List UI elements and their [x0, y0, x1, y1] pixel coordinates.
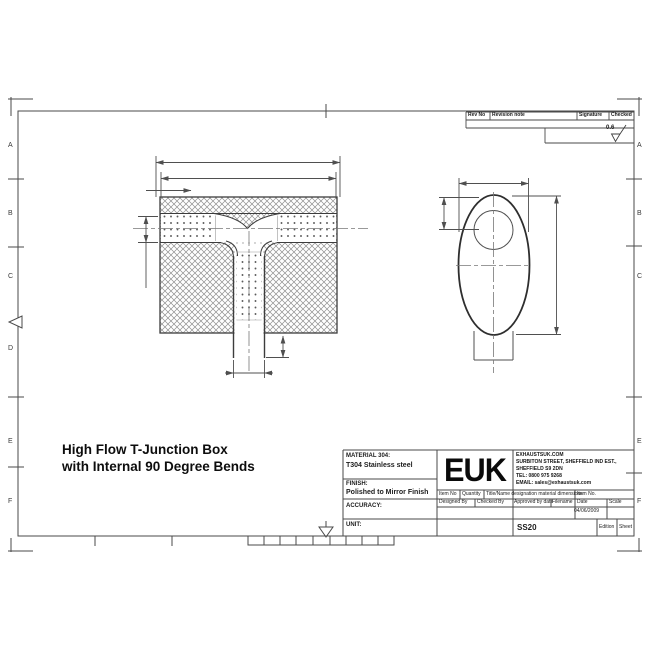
rev-no-header: Rev No	[468, 113, 485, 119]
zone-letter: F	[8, 498, 12, 506]
company-email: EMAIL: sales@exhaustsuk.com	[516, 480, 616, 487]
company-address: EXHAUSTSUK.COM SURBITON STREET, SHEFFIEL…	[516, 452, 616, 487]
unit-label: UNIT:	[346, 522, 361, 529]
front-section-view	[133, 156, 368, 378]
company-city: SHEFFIELD S9 2DN	[516, 466, 616, 473]
trim-mark	[8, 97, 33, 116]
drawing-title-line2: with Internal 90 Degree Bends	[62, 458, 255, 475]
finish-value: Polished to Mirror Finish	[346, 489, 428, 497]
zone-letter: F	[637, 498, 641, 506]
zone-letter: A	[637, 142, 642, 150]
finish-label: FINISH:	[346, 481, 368, 488]
sheet-label: Sheet	[619, 525, 632, 531]
trim-mark	[8, 538, 33, 552]
graduation-strip	[248, 536, 394, 545]
dimension-lines	[439, 178, 561, 335]
checked-by-header: Checked By	[477, 500, 504, 506]
edition-label: Edition	[599, 525, 614, 531]
zone-letter: C	[637, 273, 642, 281]
centering-mark-icon	[319, 521, 333, 537]
roughness-value: 0.6	[606, 125, 614, 132]
trim-mark	[617, 538, 642, 552]
company-web: EXHAUSTSUK.COM	[516, 452, 616, 459]
designed-by-header: Designed By	[439, 500, 467, 506]
quantity-header: Quantity	[462, 492, 481, 498]
zone-letter: E	[8, 438, 13, 446]
zone-letter: D	[8, 345, 13, 353]
drawing-linework	[0, 0, 650, 650]
euk-logo: EUK	[439, 450, 512, 490]
zone-letter: E	[637, 438, 642, 446]
revision-note-header: Revision note	[492, 113, 525, 119]
zone-letter: B	[637, 210, 642, 218]
zone-letter: A	[8, 142, 13, 150]
checked-header: Checked	[611, 113, 632, 119]
drawing-title: High Flow T-Junction Box with Internal 9…	[62, 441, 255, 475]
material-label: MATERIAL 304:	[346, 453, 390, 460]
material-value: T304 Stainless steel	[346, 462, 413, 470]
date-value: 04/06/2009	[574, 509, 599, 515]
date-header: Date	[577, 500, 588, 506]
accuracy-label: ACCURACY:	[346, 503, 382, 510]
item-no-right-header: Item No.	[577, 492, 596, 498]
signature-header: Signature	[579, 113, 602, 119]
zone-letter: B	[8, 210, 13, 218]
company-street: SURBITON STREET, SHEFFIELD IND EST.,	[516, 459, 616, 466]
scale-header: Scale	[609, 500, 622, 506]
title-name-header: Title/Name designation material dimensio…	[486, 492, 583, 498]
filename-header: Filename	[552, 500, 573, 506]
drawing-number: SS20	[517, 523, 537, 532]
company-tel: TEL: 0800 975 9268	[516, 473, 616, 480]
drawing-title-line1: High Flow T-Junction Box	[62, 441, 255, 458]
zone-letter: C	[8, 273, 13, 281]
end-view	[439, 178, 561, 373]
drawing-sheet: { "drawing_title": { "line1": "High Flow…	[0, 0, 650, 650]
approved-by-header: Approved by date	[514, 500, 553, 506]
zone-ticks-bottom	[95, 536, 172, 546]
item-no-header: Item No	[439, 492, 457, 498]
centering-mark-icon	[9, 316, 22, 328]
